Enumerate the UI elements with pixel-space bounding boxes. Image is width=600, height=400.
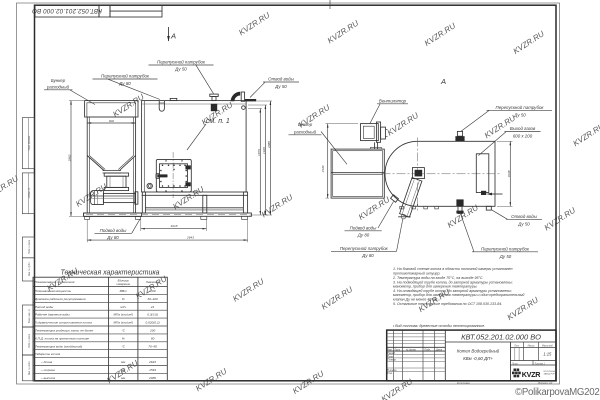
svg-text:21: 21 xyxy=(150,305,155,309)
svg-text:30–100: 30–100 xyxy=(147,297,158,301)
svg-text:Габариты котла: Габариты котла xyxy=(35,352,60,356)
svg-text:МПа (кгс/см²): МПа (кгс/см²) xyxy=(113,321,133,325)
svg-text:см. п. 1: см. п. 1 xyxy=(206,118,230,125)
svg-text:©PolikarpovaMG2021: ©PolikarpovaMG2021 xyxy=(515,387,600,398)
svg-text:К.П.Д. котла на проектном топл: К.П.Д. котла на проектном топливе xyxy=(35,336,89,340)
svg-text:Номинальная мощность: Номинальная мощность xyxy=(35,289,72,293)
svg-text:Инв. № дубл.: Инв. № дубл. xyxy=(28,262,31,276)
svg-text:Т.контр.: Т.контр. xyxy=(387,360,397,362)
svg-text:• Вид топлива: древесные отх: • Вид топлива: древесные отходы пеллетир… xyxy=(393,324,485,328)
svg-text:1544: 1544 xyxy=(321,165,325,172)
svg-text:Диапазон рабочего регулировани: Диапазон рабочего регулирования xyxy=(34,297,86,301)
svg-text:Справ. №: Справ. № xyxy=(28,187,31,198)
svg-text:0,3(3,0): 0,3(3,0) xyxy=(147,313,158,317)
svg-text:1:15: 1:15 xyxy=(543,352,552,357)
svg-text:Формат А3: Формат А3 xyxy=(538,381,553,385)
svg-text:Утв.: Утв. xyxy=(387,373,393,375)
svg-text:2643: 2643 xyxy=(186,236,194,240)
svg-text:Подп.: Подп. xyxy=(425,348,431,351)
svg-text:МВт: МВт xyxy=(120,289,128,293)
svg-text:1018: 1018 xyxy=(171,224,178,228)
svg-text:KVZR: KVZR xyxy=(522,370,541,379)
svg-text:– высота: – высота xyxy=(40,376,55,380)
svg-text:Масштаб: Масштаб xyxy=(542,345,553,347)
svg-text:Подп. и дата: Подп. и дата xyxy=(28,239,31,254)
svg-text:Температура уходящих газов, не: Температура уходящих газов, не более xyxy=(35,329,93,333)
svg-text:КВТ.052.201.02.000 ВО: КВТ.052.201.02.000 ВО xyxy=(461,332,541,341)
svg-text:Лит.: Лит. xyxy=(513,345,520,347)
svg-text:КОТЕЛЬНЫЙ: КОТЕЛЬНЫЙ xyxy=(544,370,557,373)
svg-text:0,020(0,2): 0,020(0,2) xyxy=(146,321,160,325)
svg-text:Бункер: Бункер xyxy=(51,78,66,83)
svg-text:КВТ.052.201.02.000 ВО: КВТ.052.201.02.000 ВО xyxy=(32,7,102,14)
svg-text:Расход воды: Расход воды xyxy=(35,305,54,309)
svg-text:Подвод воды: Подвод воды xyxy=(350,225,377,230)
svg-text:Вентилятор: Вентилятор xyxy=(379,98,407,103)
svg-text:Пров.: Пров. xyxy=(387,356,393,358)
svg-text:1862: 1862 xyxy=(68,154,72,161)
svg-text:2643: 2643 xyxy=(148,360,156,364)
svg-text:Лист: Лист xyxy=(393,349,400,351)
svg-text:№ докум.: № докум. xyxy=(406,348,416,351)
svg-text:Подвод воды: Подвод воды xyxy=(100,228,127,233)
svg-text:1638: 1638 xyxy=(507,170,511,177)
svg-text:Ду 80: Ду 80 xyxy=(118,81,131,86)
svg-text:1875: 1875 xyxy=(257,149,261,156)
svg-text:Отвод воды: Отвод воды xyxy=(511,214,537,219)
svg-text:Перепускной патрубок: Перепускной патрубок xyxy=(101,74,150,79)
svg-text:Перепускной патрубок: Перепускной патрубок xyxy=(340,246,389,251)
svg-text:Ду 50: Ду 50 xyxy=(499,254,512,259)
svg-text:Ду 80: Ду 80 xyxy=(106,235,119,240)
svg-text:Бункер: Бункер xyxy=(298,122,313,127)
svg-text:Значение: Значение xyxy=(146,280,160,284)
svg-text:Перв. примен.: Перв. примен. xyxy=(29,135,31,151)
svg-text:Ду 80: Ду 80 xyxy=(357,233,370,238)
svg-text:1920: 1920 xyxy=(262,147,266,154)
svg-text:– длина: – длина xyxy=(40,360,52,364)
svg-text:Масса: Масса xyxy=(528,345,536,347)
svg-text:расходный: расходный xyxy=(293,129,317,134)
svg-text:Ду 50: Ду 50 xyxy=(513,113,526,118)
svg-text:5. Остальные технические треб: 5. Остальные технические требования по О… xyxy=(393,302,502,306)
svg-text:противопожарный штуцер.: противопожарный штуцер. xyxy=(393,272,441,276)
svg-text:Ду 80: Ду 80 xyxy=(361,253,374,258)
svg-text:ЗАВОД РЗР: ЗАВОД РЗР xyxy=(544,372,556,375)
svg-text:м³/ч: м³/ч xyxy=(120,305,126,309)
svg-text:Ду 50: Ду 50 xyxy=(517,222,530,227)
svg-text:Гидравлическое сопротивление к: Гидравлическое сопротивление котла xyxy=(35,321,92,325)
svg-text:Перепускной патрубок: Перепускной патрубок xyxy=(496,105,545,110)
svg-text:200: 200 xyxy=(149,329,155,333)
svg-text:Перепускной патрубок: Перепускной патрубок xyxy=(481,246,530,251)
svg-text:600 х 200: 600 х 200 xyxy=(513,133,533,138)
svg-text:Подп. и дата: Подп. и дата xyxy=(28,333,31,348)
svg-text:0,60: 0,60 xyxy=(150,289,156,293)
svg-text:Ду 50: Ду 50 xyxy=(174,67,187,72)
svg-text:Взам. инв. №: Взам. инв. № xyxy=(28,308,31,323)
svg-text:70–95: 70–95 xyxy=(148,344,157,348)
svg-text:КВм -0,60 ДП+: КВм -0,60 ДП+ xyxy=(463,356,493,361)
svg-text:902: 902 xyxy=(109,119,114,123)
svg-text:Наименование показателя: Наименование показателя xyxy=(35,280,75,284)
svg-text:расходный: расходный xyxy=(46,85,70,90)
svg-text:– ширина: – ширина xyxy=(40,368,55,372)
svg-text:2080: 2080 xyxy=(267,141,271,149)
svg-text:Температура воды (вход/выход): Температура воды (вход/выход) xyxy=(35,344,82,348)
svg-text:Изм: Изм xyxy=(387,349,392,351)
svg-text:А: А xyxy=(440,77,446,86)
svg-text:Техническая характеристика: Техническая характеристика xyxy=(60,270,159,277)
svg-text:Ду 50: Ду 50 xyxy=(274,84,287,89)
svg-text:клапан Ду не менее 40 мм.: клапан Ду не менее 40 мм. xyxy=(393,298,438,302)
svg-text:Копировал: Копировал xyxy=(457,381,470,385)
svg-text:Н.контр.: Н.контр. xyxy=(387,370,397,372)
svg-text:Инв. № подл.: Инв. № подл. xyxy=(28,361,31,376)
svg-text:Перепускной патрубок: Перепускной патрубок xyxy=(157,60,206,65)
svg-text:А: А xyxy=(170,32,176,41)
svg-text:Рабочее давление воды: Рабочее давление воды xyxy=(35,313,70,317)
svg-text:Разраб.: Разраб. xyxy=(387,353,396,355)
svg-text:МПа (кгс/см²): МПа (кгс/см²) xyxy=(113,313,133,317)
svg-text:%: % xyxy=(122,336,125,340)
svg-text:Дата: Дата xyxy=(435,349,443,351)
svg-text:Выход газов: Выход газов xyxy=(510,126,536,131)
svg-text:80: 80 xyxy=(151,336,155,340)
svg-text:измерения: измерения xyxy=(116,283,130,286)
svg-text:2080: 2080 xyxy=(148,376,156,380)
svg-text:Отвод воды: Отвод воды xyxy=(268,77,294,82)
svg-text:%: % xyxy=(122,297,125,301)
svg-text:1544: 1544 xyxy=(149,368,156,372)
svg-text:Котел Водогрейный: Котел Водогрейный xyxy=(457,349,500,354)
